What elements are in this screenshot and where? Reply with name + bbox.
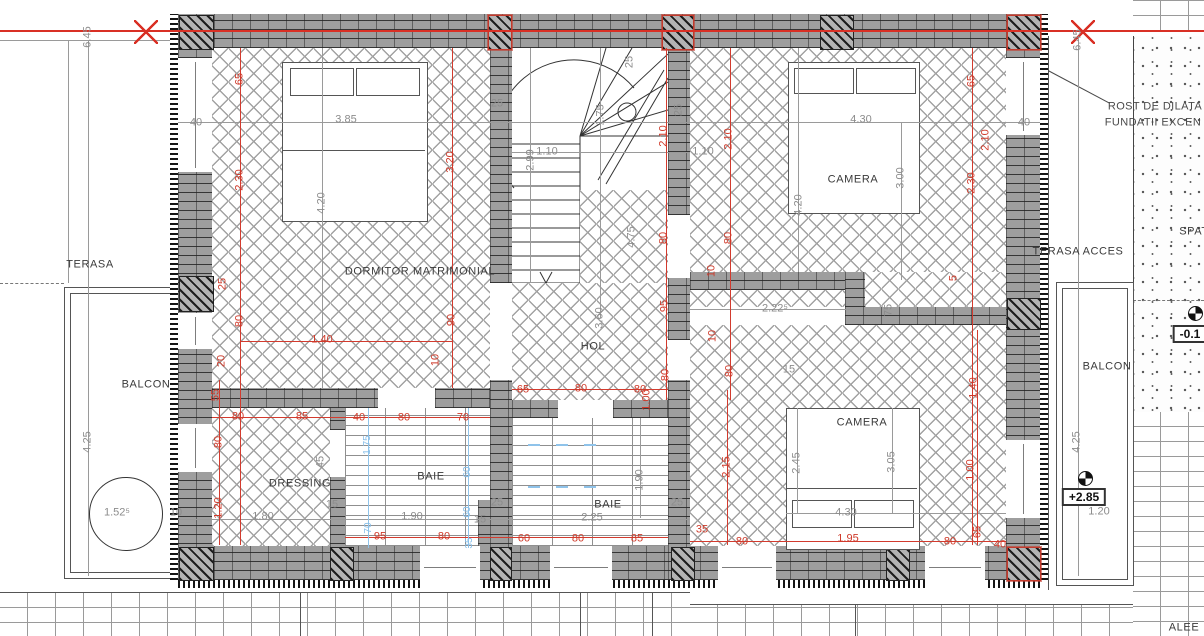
dim-2.30: 2.30 xyxy=(967,172,978,193)
dim-1.20: 1.20 xyxy=(1088,507,1109,518)
dim-60: 60 xyxy=(518,534,530,545)
dim-4.25: 4.25 xyxy=(1072,431,1083,452)
dim-35: 35 xyxy=(465,537,475,548)
label-spatiu-cut: SPAT xyxy=(1179,227,1204,238)
label-alee: ALEE xyxy=(1169,623,1200,634)
dim-2.10: 2.10 xyxy=(981,129,992,150)
dim-2.22⁵: 2.22⁵ xyxy=(762,304,788,315)
dim-2.99: 2.99 xyxy=(526,149,537,170)
dim-1.10: 1.10 xyxy=(536,147,557,158)
dim-4.20: 4.20 xyxy=(794,194,805,215)
dim-6.45: 6.45 xyxy=(83,26,94,47)
dim-1.80: 1.80 xyxy=(252,512,273,523)
dim-15: 15 xyxy=(783,365,795,376)
label-terasa-acces: TERASA ACCES xyxy=(1033,247,1124,258)
dim-25: 25 xyxy=(218,278,229,290)
dim-4.30: 4.30 xyxy=(835,508,856,519)
dim-80: 80 xyxy=(661,369,672,381)
annotation-layer: TERASABALCONDORMITOR MATRIMONIALHOLDRESS… xyxy=(0,0,1204,636)
dim-65: 65 xyxy=(235,73,246,85)
dim-1.90: 1.90 xyxy=(401,512,422,523)
dim-4.30: 4.30 xyxy=(850,115,871,126)
dim-55: 55 xyxy=(211,389,222,401)
dim-10: 10 xyxy=(170,508,182,519)
dim-3.20: 3.20 xyxy=(446,151,457,172)
dim-70: 70 xyxy=(457,413,469,424)
dim-25: 25 xyxy=(491,99,503,110)
dim-65: 65 xyxy=(967,75,978,87)
dim-80: 80 xyxy=(944,537,956,548)
dim-1.40: 1.40 xyxy=(969,377,980,398)
dim-4.20: 4.20 xyxy=(317,192,328,213)
dim-80: 80 xyxy=(572,534,584,545)
level-plus-2-85: +2.85 xyxy=(1062,488,1106,506)
dim-80: 80 xyxy=(575,384,587,395)
dim-2.30: 2.30 xyxy=(235,169,246,190)
dim-40: 40 xyxy=(190,118,202,129)
dim-45: 45 xyxy=(316,456,327,468)
label-dressing: DRESSING xyxy=(269,479,331,490)
dim-80: 80 xyxy=(725,365,736,377)
dim-65: 65 xyxy=(517,385,529,396)
label-balcon-right: BALCON xyxy=(1083,362,1132,373)
dim-1.75: 1.75 xyxy=(596,104,607,125)
dim-1.90: 1.90 xyxy=(635,469,646,490)
dim-60: 60 xyxy=(463,506,473,517)
label-camera-top: CAMERA xyxy=(828,175,879,186)
dim-3.85: 3.85 xyxy=(335,115,356,126)
label-baie-1: BAIE xyxy=(417,472,444,483)
dim-95: 95 xyxy=(374,532,386,543)
dim-80: 80 xyxy=(634,385,646,396)
dim-25: 25 xyxy=(625,56,636,68)
dim-1.52⁵: 1.52⁵ xyxy=(104,508,130,519)
dim-80: 80 xyxy=(659,232,670,244)
dim-80: 80 xyxy=(232,412,244,423)
label-terasa: TERASA xyxy=(66,260,114,271)
label-camera-bottom: CAMERA xyxy=(837,418,888,429)
note-rost-line1: ROST DE DILATA xyxy=(1108,102,1202,113)
dim-80: 80 xyxy=(736,537,748,548)
dim-10: 10 xyxy=(707,265,718,277)
dim-80: 80 xyxy=(724,232,735,244)
dim-2.15: 2.15 xyxy=(722,456,733,477)
dim-2.45: 2.45 xyxy=(792,452,803,473)
dim-90: 90 xyxy=(447,314,458,326)
dim-20: 20 xyxy=(217,355,228,367)
label-dormitor-matrimonial: DORMITOR MATRIMONIAL xyxy=(345,267,495,278)
dim-1.75: 1.75 xyxy=(363,435,373,454)
dim-2.10: 2.10 xyxy=(659,125,670,146)
dim-10: 10 xyxy=(431,354,442,366)
dim-2.25: 2.25 xyxy=(581,513,602,524)
dim-15: 15 xyxy=(474,515,486,526)
label-baie-2: BAIE xyxy=(594,500,621,511)
dim-4.25: 4.25 xyxy=(83,431,94,452)
dim-1.10: 1.10 xyxy=(692,147,713,158)
dim-2.10: 2.10 xyxy=(724,128,735,149)
dim-1.00: 1.00 xyxy=(966,459,977,480)
label-balcon-left: BALCON xyxy=(122,380,171,391)
dim-80: 80 xyxy=(438,532,450,543)
note-rost-line2: FUNDATII EXCEN xyxy=(1105,118,1201,129)
dim-25: 25 xyxy=(671,498,683,509)
dim-80: 80 xyxy=(235,315,246,327)
dim-15: 15 xyxy=(326,500,338,511)
dim-75: 75 xyxy=(884,304,895,316)
dim-40: 40 xyxy=(1018,118,1030,129)
level-minus-0-1: -0.1 xyxy=(1173,325,1204,343)
dim-85: 85 xyxy=(296,412,308,423)
dim-1.95: 1.95 xyxy=(837,534,858,545)
dim-95: 95 xyxy=(660,300,671,312)
dim-1.20: 1.20 xyxy=(214,497,225,518)
dim-4.75: 4.75 xyxy=(627,226,638,247)
dim-40: 40 xyxy=(353,413,365,424)
label-hol: HOL xyxy=(581,342,605,353)
dim-25: 25 xyxy=(491,498,503,509)
dim-40: 40 xyxy=(994,540,1006,551)
dim-6.45: 6.45 xyxy=(1073,29,1084,50)
dim-5: 5 xyxy=(949,275,960,281)
dim-3.00: 3.00 xyxy=(896,167,907,188)
dim-25: 25 xyxy=(674,104,685,116)
dim-60: 60 xyxy=(463,466,473,477)
dim-3.60: 3.60 xyxy=(595,307,606,328)
dim-65: 65 xyxy=(973,526,984,538)
dim-10: 10 xyxy=(708,330,719,342)
dim-1.40: 1.40 xyxy=(311,335,332,346)
floor-plan-drawing: TERASABALCONDORMITOR MATRIMONIALHOLDRESS… xyxy=(0,0,1204,636)
dim-70: 70 xyxy=(364,522,374,533)
dim-80: 80 xyxy=(398,413,410,424)
dim-80: 80 xyxy=(214,436,225,448)
dim-35: 35 xyxy=(696,525,708,536)
dim-85: 85 xyxy=(631,534,643,545)
dim-3.05: 3.05 xyxy=(887,451,898,472)
